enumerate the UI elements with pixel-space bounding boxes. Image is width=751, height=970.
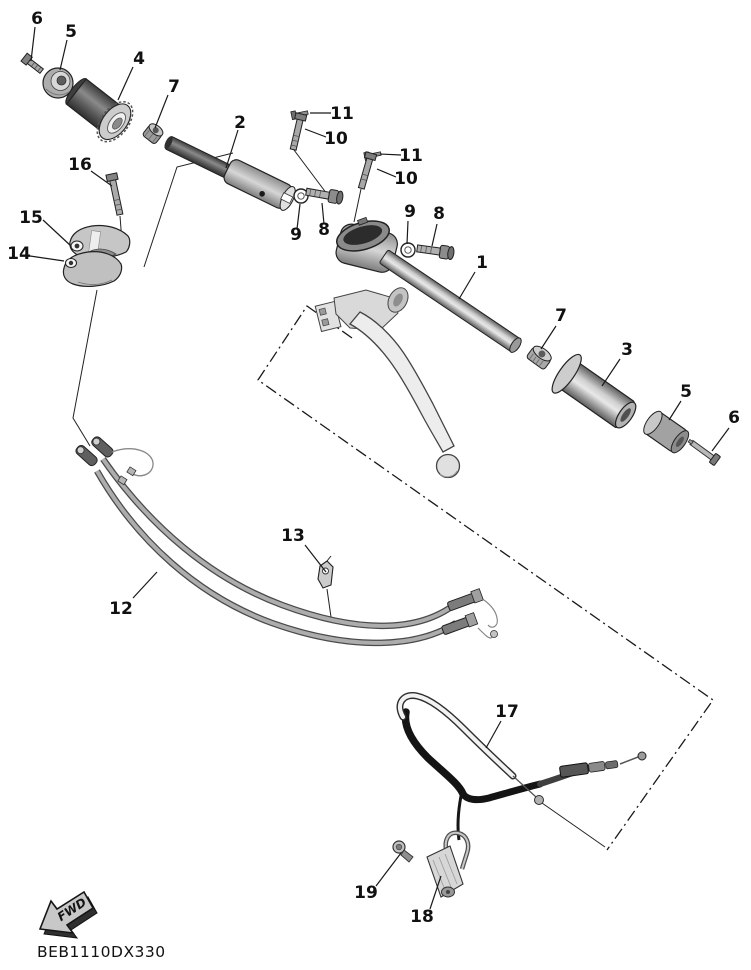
- part-callout-10: 10: [324, 129, 348, 149]
- part-callout-6: 6: [728, 408, 740, 428]
- handlebar-left: [163, 135, 299, 213]
- callout-leader-14: [30, 256, 64, 261]
- bar-end-collar-right: [640, 408, 692, 456]
- callout-leader-7: [541, 326, 556, 349]
- clutch-lever-assembly: [315, 284, 459, 477]
- bar-end-bolt-right: [686, 436, 721, 465]
- cable-adjuster-1: [446, 589, 483, 612]
- part-callout-2: 2: [234, 113, 246, 133]
- part-callout-11: 11: [399, 146, 423, 166]
- bolt-8-right: [416, 242, 454, 260]
- aux-leader-6: [327, 589, 331, 617]
- part-callout-12: 12: [109, 599, 133, 619]
- part-callout-17: 17: [495, 702, 519, 722]
- part-callout-19: 19: [354, 883, 378, 903]
- part-callout-7: 7: [168, 77, 180, 97]
- fwd-arrow: FWD: [40, 892, 97, 938]
- handlebar-right: [333, 216, 523, 355]
- callout-leader-13: [305, 545, 326, 572]
- part-callout-6: 6: [31, 9, 43, 29]
- part-callout-5: 5: [680, 382, 692, 402]
- aux-leader-7: [542, 803, 605, 847]
- part-callout-3: 3: [621, 340, 633, 360]
- callout-leader-6: [712, 428, 729, 451]
- callout-leader-11: [380, 154, 401, 155]
- callout-leader-12: [133, 572, 157, 598]
- part-callout-16: 16: [68, 155, 92, 175]
- callout-leader-8: [432, 224, 437, 246]
- aux-leader-5: [73, 290, 97, 446]
- part-callout-5: 5: [65, 22, 77, 42]
- lever-blade: [350, 312, 454, 452]
- grip-tube-right: [547, 351, 644, 438]
- part-callout-14: 14: [7, 244, 31, 264]
- callout-leader-1: [459, 272, 475, 299]
- callout-leader-9: [407, 221, 408, 244]
- part-callout-7: 7: [555, 306, 567, 326]
- callout-leader-19: [376, 853, 401, 886]
- part-callout-13: 13: [281, 526, 305, 546]
- part-callout-18: 18: [410, 907, 434, 927]
- part-callout-8: 8: [318, 220, 330, 240]
- cable-adjuster-2: [441, 613, 478, 636]
- part-callout-10: 10: [394, 169, 418, 189]
- bolt-10-left: [288, 113, 307, 151]
- ring-nut-left: [142, 121, 165, 144]
- lever-ball-end: [437, 455, 460, 478]
- callout-leader-15: [43, 220, 71, 246]
- bolt-10-right: [356, 152, 377, 190]
- part-callout-11: 11: [330, 104, 354, 124]
- callout-leader-7: [155, 95, 168, 128]
- cable-bracket: [427, 833, 468, 897]
- part-callout-4: 4: [133, 49, 145, 69]
- callout-layer: 65472111016151498111098173561312171918: [7, 9, 740, 927]
- bar-end-bolt-left: [21, 53, 45, 75]
- cable-ball-end: [535, 796, 544, 805]
- callout-leader-5: [60, 40, 67, 70]
- bolt-8-left: [305, 185, 344, 204]
- aux-leader-1: [294, 150, 327, 194]
- part-callout-15: 15: [19, 208, 43, 228]
- part-callout-1: 1: [476, 253, 488, 273]
- callout-leader-3: [602, 359, 620, 386]
- callout-leader-10: [377, 169, 396, 177]
- callout-leader-10: [305, 129, 326, 137]
- part-callout-9: 9: [290, 225, 302, 245]
- part-callout-8: 8: [433, 204, 445, 224]
- ring-nut-right: [526, 343, 554, 370]
- callout-leader-17: [486, 721, 501, 748]
- clutch-cable: [400, 695, 646, 840]
- aux-leader-2: [354, 189, 361, 222]
- handlebar-holder-lower: [63, 252, 121, 287]
- callout-leader-5: [669, 401, 681, 420]
- washer-9-right: [401, 243, 415, 257]
- clutch-cable-adjuster: [559, 758, 618, 777]
- callout-leader-4: [118, 67, 133, 100]
- diagram-canvas: FWD BEB1110DX330 65472111016151498111098…: [0, 0, 751, 970]
- parts-diagram-page: FWD BEB1110DX330 65472111016151498111098…: [0, 0, 751, 970]
- part-callout-9: 9: [404, 202, 416, 222]
- holder-bolt-16: [106, 173, 125, 216]
- diagram-code: BEB1110DX330: [37, 943, 166, 961]
- callout-leader-6: [31, 27, 35, 61]
